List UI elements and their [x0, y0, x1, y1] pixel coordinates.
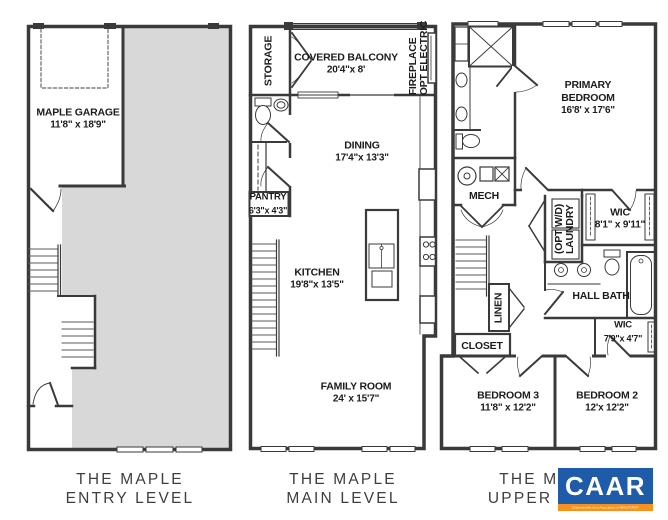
toilet-icon	[456, 134, 463, 149]
room-name: STORAGE	[264, 36, 275, 86]
toilet-bowl-icon	[256, 106, 271, 125]
room-label-storage: STORAGE	[264, 36, 275, 86]
vanity-sink-icon	[456, 73, 467, 87]
room-label-dining: DINING 17'4"x 13'3"	[335, 140, 389, 165]
room-name: HALL BATH	[572, 290, 629, 302]
room-label-linen: LINEN	[494, 293, 505, 324]
room-label-laundry: (OPT W/D) LAUNDRY	[554, 204, 576, 254]
toilet-bowl-icon	[605, 259, 619, 275]
room-label-bedroom2: BEDROOM 2 12'x 12'2"	[576, 390, 638, 415]
floor-plan-canvas	[0, 0, 668, 520]
driveway-unfinished-area	[62, 27, 231, 450]
room-label-pantry: PANTRY 6'3"x 4'3"	[249, 192, 287, 217]
caar-logo-text: CAAR	[565, 473, 646, 499]
room-label-bedroom3: BEDROOM 3 11'8" x 12'2"	[477, 390, 539, 415]
room-label-family-room: FAMILY ROOM 24' x 15'7"	[321, 381, 392, 406]
room-name: BEDROOM 3	[477, 390, 539, 402]
caption-level-name: ENTRY LEVEL	[66, 490, 195, 509]
room-dims: 24' x 15'7"	[333, 394, 379, 406]
front-entry-door	[28, 383, 72, 406]
caption-main-level: THE MAPLE MAIN LEVEL	[286, 471, 399, 508]
bedroom-bottom-wall	[515, 186, 655, 194]
room-name: PRIMARY	[565, 79, 612, 91]
hall-sink-icon	[555, 264, 568, 277]
room-name: LAUNDRY	[565, 204, 576, 254]
room-name: CLOSET	[461, 340, 502, 352]
room-name: COVERED BALCONY	[294, 52, 398, 64]
room-label-primary-bedroom: PRIMARY BEDROOM 16'8' x 17'6"	[561, 79, 615, 117]
caption-entry-level: THE MAPLE ENTRY LEVEL	[66, 471, 195, 508]
room-dims: 20'4"x 8'	[327, 65, 365, 77]
room-name: KITCHEN	[294, 267, 339, 279]
upper-level-plan	[442, 22, 656, 452]
room-name-2: BEDROOM	[561, 92, 614, 104]
room-label-kitchen: KITCHEN 19'8"x 13'5"	[290, 267, 344, 292]
room-label-wic-primary: WIC 8'1" x 9'11"	[595, 207, 645, 232]
toilet-bowl-icon	[463, 135, 480, 148]
room-label-wic-hall: WIC 7'9"x 4'7"	[604, 320, 642, 345]
stove-icon	[420, 237, 436, 266]
caar-logo-tagline: Charlottesville Area Association of REAL…	[572, 506, 639, 509]
room-label-hall-bath: HALL BATH	[572, 290, 629, 302]
room-name: WIC	[610, 207, 630, 219]
caption-plan-name: THE MAPLE	[286, 471, 399, 490]
primary-bath	[455, 24, 515, 158]
room-name: MAPLE GARAGE	[36, 107, 119, 119]
room-label-garage: MAPLE GARAGE 11'8" x 18'9"	[36, 107, 119, 132]
room-name: FAMILY ROOM	[321, 381, 392, 393]
main-stairs	[252, 240, 279, 356]
hall-sink-icon	[578, 264, 591, 277]
room-dims: 6'3"x 4'3"	[249, 205, 287, 217]
pantry-door	[261, 167, 289, 186]
room-name: WIC	[614, 320, 632, 332]
room-dims: 11'8" x 18'9"	[50, 120, 106, 132]
caption-level-name: MAIN LEVEL	[286, 490, 399, 509]
room-dims: 19'8"x 13'5"	[290, 280, 344, 292]
balcony-railing	[290, 24, 422, 30]
entry-level-plan	[28, 23, 231, 452]
floor-plan-sheet: MAPLE GARAGE 11'8" x 18'9" STORAGE COVER…	[0, 0, 668, 520]
room-dims: 7'9"x 4'7"	[604, 333, 642, 345]
room-name: DINING	[344, 140, 380, 152]
caar-logo-tagline-bar: Charlottesville Area Association of REAL…	[558, 504, 653, 511]
room-dims: 16'8' x 17'6"	[561, 105, 615, 117]
powder-door	[261, 123, 289, 142]
caption-plan-name: THE MAPLE	[66, 471, 195, 490]
garage-hall-door	[31, 189, 61, 211]
room-name: MECH	[469, 190, 499, 202]
caar-logo-mark: CAAR	[558, 468, 653, 504]
toilet-icon	[604, 250, 620, 257]
kitchen-counter	[419, 97, 436, 334]
room-name: PANTRY	[250, 192, 287, 204]
room-name: LINEN	[494, 293, 505, 324]
primary-bath-door	[515, 66, 537, 92]
room-dims: 8'1" x 9'11"	[595, 220, 645, 232]
vanity-sink-icon	[456, 107, 467, 121]
water-heater-icon	[458, 167, 476, 185]
room-label-closet: CLOSET	[461, 340, 502, 352]
powder-room	[250, 98, 290, 142]
fridge-icon	[419, 169, 436, 200]
toilet-icon	[255, 98, 271, 106]
entry-bottom-windows	[117, 447, 202, 452]
room-dims: 12'x 12'2"	[585, 403, 629, 415]
hall-closet	[258, 142, 266, 192]
upper-stairs	[456, 236, 489, 296]
room-name: OPT ELECTRIC	[419, 21, 430, 96]
dishwasher-icon	[420, 296, 436, 323]
caar-logo: CAAR Charlottesville Area Association of…	[558, 468, 653, 511]
room-dims: 11'8" x 12'2"	[480, 403, 536, 415]
kitchen-island	[366, 210, 398, 300]
garage-door-dashed	[41, 29, 108, 88]
room-label-fireplace: FIREPLACE OPT ELECTRIC	[408, 21, 430, 96]
room-name: BEDROOM 2	[576, 390, 638, 402]
room-label-covered-balcony: COVERED BALCONY 20'4"x 8'	[294, 52, 398, 77]
room-dims: 17'4"x 13'3"	[335, 153, 389, 165]
room-label-mech: MECH	[469, 190, 499, 202]
